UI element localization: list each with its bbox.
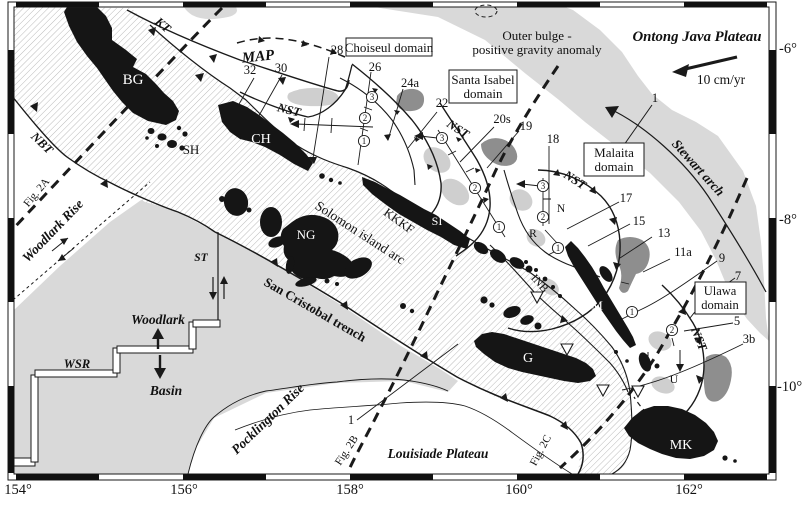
svg-text:Woodlark: Woodlark <box>131 312 185 327</box>
svg-text:17: 17 <box>620 191 633 205</box>
svg-text:ST: ST <box>194 252 208 264</box>
svg-text:1: 1 <box>556 243 561 253</box>
svg-text:1: 1 <box>630 307 635 317</box>
svg-text:26: 26 <box>369 60 382 74</box>
svg-text:Malaita: Malaita <box>594 145 634 160</box>
svg-text:BG: BG <box>123 72 144 88</box>
svg-text:3: 3 <box>370 92 375 102</box>
svg-text:3: 3 <box>541 181 546 191</box>
svg-text:-6°: -6° <box>779 41 797 57</box>
svg-text:2: 2 <box>670 325 675 335</box>
svg-text:3: 3 <box>440 133 445 143</box>
svg-text:160°: 160° <box>505 482 533 498</box>
svg-text:SH: SH <box>183 142 200 157</box>
svg-text:domain: domain <box>464 86 503 101</box>
svg-text:10 cm/yr: 10 cm/yr <box>697 72 746 87</box>
svg-text:2: 2 <box>473 183 478 193</box>
svg-text:18: 18 <box>547 132 560 146</box>
svg-text:-8°: -8° <box>779 212 797 228</box>
svg-text:162°: 162° <box>675 482 703 498</box>
svg-text:28: 28 <box>331 43 344 57</box>
svg-text:Santa Isabel: Santa Isabel <box>451 72 515 87</box>
svg-text:24a: 24a <box>401 76 420 90</box>
svg-text:WSR: WSR <box>64 357 90 371</box>
svg-text:domain: domain <box>701 298 739 312</box>
svg-text:-10°: -10° <box>777 379 802 395</box>
svg-text:11a: 11a <box>674 245 692 259</box>
svg-text:9: 9 <box>719 251 725 265</box>
svg-text:2: 2 <box>541 212 546 222</box>
svg-text:Ontong Java Plateau: Ontong Java Plateau <box>632 29 761 45</box>
svg-text:NG: NG <box>297 227 316 242</box>
svg-text:156°: 156° <box>170 482 198 498</box>
svg-text:Outer bulge -: Outer bulge - <box>502 28 571 43</box>
svg-text:154°: 154° <box>4 482 32 498</box>
svg-text:15: 15 <box>633 214 646 228</box>
svg-text:Basin: Basin <box>149 383 182 398</box>
svg-text:32: 32 <box>244 63 257 77</box>
svg-text:positive gravity anomaly: positive gravity anomaly <box>472 42 602 57</box>
svg-text:158°: 158° <box>336 482 364 498</box>
svg-text:2: 2 <box>363 113 368 123</box>
svg-text:M: M <box>591 298 603 313</box>
svg-text:U: U <box>670 372 679 386</box>
svg-text:1: 1 <box>348 413 354 427</box>
svg-text:Ulawa: Ulawa <box>704 284 737 298</box>
svg-text:3b: 3b <box>743 332 756 346</box>
svg-text:20s: 20s <box>493 112 511 126</box>
svg-text:G: G <box>523 351 533 366</box>
svg-text:CH: CH <box>251 132 270 147</box>
svg-text:7: 7 <box>735 269 741 283</box>
svg-text:1: 1 <box>652 91 658 105</box>
svg-text:5: 5 <box>734 314 740 328</box>
svg-text:N: N <box>557 203 566 215</box>
svg-text:30: 30 <box>275 61 288 75</box>
svg-text:13: 13 <box>658 226 671 240</box>
svg-text:1: 1 <box>362 136 367 146</box>
svg-text:R: R <box>529 228 537 240</box>
svg-text:19: 19 <box>520 119 533 133</box>
svg-text:MK: MK <box>670 438 693 453</box>
svg-text:domain: domain <box>595 159 634 174</box>
svg-text:Louisiade Plateau: Louisiade Plateau <box>387 446 489 461</box>
svg-text:1: 1 <box>497 222 502 232</box>
svg-text:Choiseul domain: Choiseul domain <box>345 40 434 55</box>
svg-text:SI: SI <box>432 214 443 228</box>
svg-text:22: 22 <box>436 96 449 110</box>
